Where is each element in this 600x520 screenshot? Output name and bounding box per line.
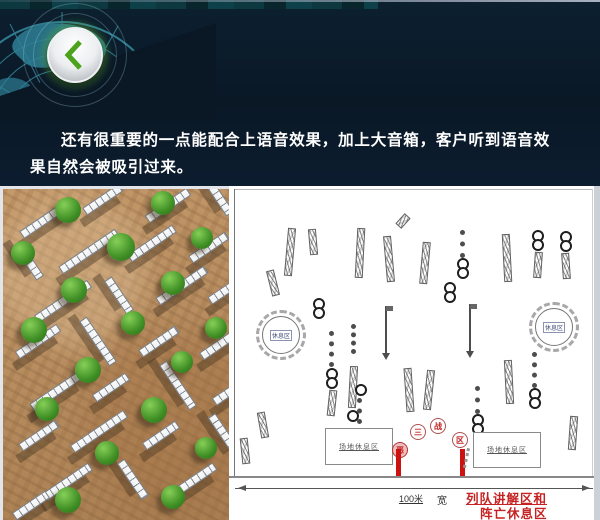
- table-mark: 休息区: [262, 316, 300, 354]
- wall-mark: [257, 412, 269, 439]
- field-boundary-left: [234, 189, 235, 476]
- wall-mark: [308, 229, 318, 256]
- wall-mark: [284, 228, 296, 277]
- photo-bush: [61, 277, 87, 303]
- photo-bush: [191, 227, 213, 249]
- rest-box-left: 场地休息区: [325, 428, 393, 465]
- chain-mark: [475, 386, 480, 414]
- rings-mark: [355, 384, 367, 396]
- photo-bush: [151, 191, 175, 215]
- photo-bush: [121, 311, 145, 335]
- photo-bush: [107, 233, 135, 261]
- slide-paragraph: 还有很重要的一点能配合上语音效果，加上大音箱，客户听到语音效果自然会被吸引过来。: [30, 127, 564, 182]
- field-boundary-top: [234, 189, 592, 190]
- photo-wall: [204, 186, 229, 217]
- wall-mark: [504, 360, 514, 404]
- wall-mark: [395, 213, 410, 229]
- slide: 还有很重要的一点能配合上语音效果，加上大音箱，客户听到语音效果自然会被吸引过来。…: [0, 0, 600, 520]
- wall-mark: [502, 234, 513, 282]
- photo-bush: [195, 437, 217, 459]
- annotation-line2: 阵亡休息区: [480, 503, 548, 520]
- wall-mark: [355, 228, 366, 278]
- wall-mark: [327, 390, 338, 417]
- field-boundary-bottom: [229, 476, 596, 478]
- photo-bush: [161, 271, 185, 295]
- ring-icon: [313, 307, 325, 319]
- wall-mark: [423, 370, 435, 411]
- content-row: 休息区休息区 场地休息区 场地休息区 恶三战区 100米 宽 列队讲解区和 阵亡…: [0, 186, 600, 520]
- pole-mark: [385, 306, 387, 358]
- wall-mark: [383, 236, 395, 283]
- diagram-panel: 休息区休息区 场地休息区 场地休息区 恶三战区 100米 宽 列队讲解区和 阵亡…: [229, 186, 600, 520]
- ring-icon: [355, 384, 367, 396]
- dimension-label: 100米: [399, 492, 423, 505]
- gate-circle: 战: [430, 418, 446, 434]
- rest-box-right-label: 场地休息区: [487, 445, 527, 455]
- back-button[interactable]: [47, 27, 103, 83]
- photo-wall: [12, 491, 50, 520]
- gate-circle: 三: [410, 424, 426, 440]
- rings-mark: [326, 368, 338, 389]
- rest-box-left-label: 场地休息区: [339, 442, 379, 452]
- chain-mark: [357, 398, 362, 424]
- photo-wall: [18, 419, 60, 451]
- rings-mark: [532, 230, 544, 251]
- photo-wall: [117, 459, 149, 501]
- photo-bush: [171, 351, 193, 373]
- photo-bush: [141, 397, 167, 423]
- wall-mark: [403, 368, 414, 412]
- rings-mark: [529, 388, 541, 409]
- header-top-edge: [0, 0, 600, 2]
- ring-icon: [529, 397, 541, 409]
- photo-bush: [35, 397, 59, 421]
- wall-mark: [240, 438, 251, 465]
- photo-wall: [82, 186, 124, 216]
- gate-circle: 区: [452, 432, 468, 448]
- photo-wall: [104, 276, 134, 314]
- rings-mark: [313, 298, 325, 319]
- ring-icon: [326, 377, 338, 389]
- wall-mark: [533, 252, 543, 278]
- width-label: 宽: [437, 492, 447, 507]
- rings-mark: [560, 231, 572, 252]
- table-label: 休息区: [543, 322, 565, 333]
- chain-mark: [532, 352, 537, 388]
- chain-mark: [351, 324, 356, 354]
- gate-pillar: [396, 449, 401, 476]
- field-boundary-right: [592, 189, 593, 476]
- rings-mark: [457, 258, 469, 279]
- photo-wall: [142, 421, 180, 451]
- page-edge: [594, 186, 600, 520]
- wall-mark: [266, 269, 280, 296]
- chain-mark: [460, 230, 465, 258]
- ring-icon: [457, 267, 469, 279]
- ring-icon: [444, 291, 456, 303]
- chain-mark: [329, 331, 334, 367]
- photo-bush: [55, 487, 81, 513]
- table-label: 休息区: [270, 330, 292, 341]
- photo-bush: [161, 485, 185, 509]
- photo-panel: [0, 186, 229, 520]
- photo-bush: [55, 197, 81, 223]
- photo-bush: [95, 441, 119, 465]
- photo-wall: [138, 325, 180, 357]
- wall-mark: [561, 253, 571, 279]
- photo-bush: [205, 317, 227, 339]
- photo-wall: [212, 377, 229, 406]
- back-chevron-icon: [49, 29, 101, 81]
- ring-icon: [532, 239, 544, 251]
- pole-mark: [469, 304, 471, 356]
- photo-wall: [207, 278, 229, 304]
- photo-bush: [11, 241, 35, 265]
- wall-mark: [419, 242, 431, 285]
- header-banner: 还有很重要的一点能配合上语音效果，加上大音箱，客户听到语音效果自然会被吸引过来。: [0, 0, 600, 186]
- ring-icon: [560, 240, 572, 252]
- rings-mark: [444, 282, 456, 303]
- photo-bush: [21, 317, 47, 343]
- rest-box-right: 场地休息区: [473, 432, 541, 468]
- photo-bush: [75, 357, 101, 383]
- table-mark: 休息区: [535, 308, 573, 346]
- wall-mark: [568, 416, 578, 450]
